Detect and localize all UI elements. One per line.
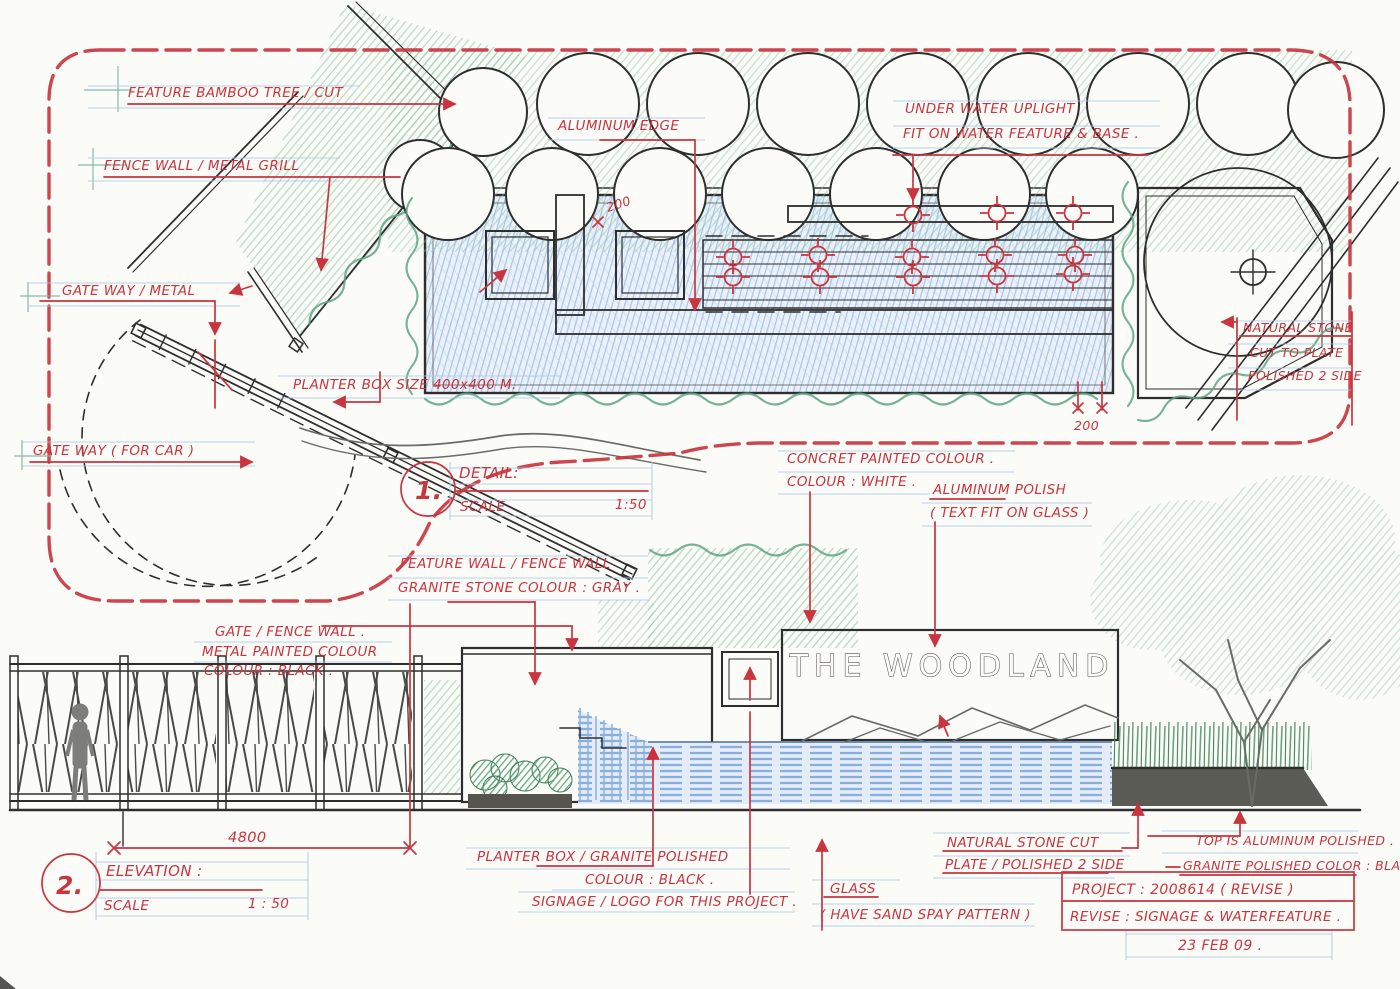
label-feature-wall-2: GRANITE STONE COLOUR : GRAY . [398, 580, 640, 596]
label-gate-fence-3: COLOUR : BLACK . [204, 663, 333, 679]
fence-post [414, 656, 422, 810]
label-top-aluminum: TOP IS ALUMINUM POLISHED . [1196, 833, 1394, 848]
elevation-title: ELEVATION : [106, 862, 203, 880]
label-fence-wall: FENCE WALL / METAL GRILL [104, 158, 299, 174]
title-elevation: 2. ELEVATION : SCALE 1 : 50 [42, 854, 289, 914]
elevation-view: THE WOODLAND [0, 451, 1400, 989]
label-aluminum-polish-1: ALUMINUM POLISH [932, 482, 1066, 498]
detail-title: DETAIL: [459, 464, 519, 482]
fence-panel [226, 672, 314, 792]
project-line: PROJECT : 2008614 ( REVISE ) [1072, 882, 1294, 898]
elevation-scale-value: 1 : 50 [248, 896, 289, 912]
construction-guides [14, 66, 132, 470]
signage-wall: THE WOODLAND [782, 630, 1118, 752]
fence-panel [18, 672, 118, 792]
fence-post [316, 656, 324, 810]
detail-number: 1. [415, 476, 443, 505]
water-wall [560, 708, 1112, 804]
label-concrete-1: CONCRET PAINTED COLOUR . [787, 451, 995, 467]
label-natural-stone-2: CUT TO PLATE [1250, 345, 1343, 360]
label-stone-cut-2: PLATE / POLISHED 2 SIDE [945, 857, 1125, 873]
label-feature-bamboo: FEATURE BAMBOO TREE / CUT [128, 85, 345, 101]
revise-line: REVISE : SIGNAGE & WATERFEATURE . [1070, 909, 1341, 925]
label-aluminum-edge: ALUMINUM EDGE [557, 118, 679, 134]
fence-post [218, 656, 226, 810]
dim-200-corner: 200 [1074, 418, 1099, 433]
drawing-sheet: FEATURE BAMBOO TREE / CUT FENCE WALL / M… [0, 0, 1400, 989]
fence-post [10, 656, 18, 810]
fence-post [120, 656, 128, 810]
label-gateway-metal: GATE WAY / METAL [62, 283, 195, 299]
label-aluminum-polish-2: ( TEXT FIT ON GLASS ) [930, 505, 1089, 521]
sketch-canvas: FEATURE BAMBOO TREE / CUT FENCE WALL / M… [0, 0, 1400, 989]
shrub-planter [468, 754, 572, 808]
label-gateway-car: GATE WAY ( FOR CAR ) [33, 443, 194, 459]
tree-foliage [1090, 475, 1400, 700]
dim-4800-text: 4800 [228, 830, 267, 846]
label-glass-2: ( HAVE SAND SPAY PATTERN ) [820, 907, 1031, 923]
label-planter-box: PLANTER BOX SIZE 400x400 M. [293, 377, 517, 393]
scan-mark [0, 976, 16, 989]
label-feature-wall-1: FEATURE WALL / FENCE WALL [400, 556, 611, 572]
label-signage-logo: SIGNAGE / LOGO FOR THIS PROJECT . [532, 894, 797, 910]
elevation-number: 2. [56, 871, 84, 900]
stone-planter [1112, 768, 1328, 806]
title-detail: 1. DETAIL: SCALE 1:50 [401, 462, 648, 516]
detail-scale-label: SCALE [460, 499, 505, 515]
label-gate-fence-2: METAL PAINTED COLOUR [202, 644, 378, 660]
label-concrete-2: COLOUR : WHITE . [787, 474, 916, 490]
elevation-scale-label: SCALE [104, 898, 149, 914]
label-uplight-1: UNDER WATER UPLIGHT [905, 101, 1076, 117]
label-natural-stone-1: NATURAL STONE [1243, 320, 1353, 335]
label-uplight-2: FIT ON WATER FEATURE & BASE . [903, 126, 1139, 142]
date-note: 23 FEB 09 . [1178, 938, 1262, 954]
project-info-box: PROJECT : 2008614 ( REVISE ) REVISE : SI… [1062, 872, 1354, 954]
label-granite-black: GRANITE POLISHED COLOR : BLACK [1183, 858, 1400, 873]
grass-bed [1112, 722, 1312, 770]
label-natural-stone-3: POLISHED 2 SIDE [1248, 368, 1362, 383]
woodland-sign-text: THE WOODLAND [789, 649, 1115, 684]
fence-panel [324, 672, 412, 792]
label-planter-granite-1: PLANTER BOX / GRANITE POLISHED [477, 849, 729, 865]
detail-scale-value: 1:50 [615, 497, 647, 513]
label-glass-1: GLASS [830, 881, 876, 897]
label-planter-granite-2: COLOUR : BLACK . [585, 872, 714, 888]
fence-panel [128, 672, 216, 792]
label-stone-cut-1: NATURAL STONE CUT [947, 835, 1100, 851]
label-gate-fence-1: GATE / FENCE WALL . [215, 624, 365, 640]
